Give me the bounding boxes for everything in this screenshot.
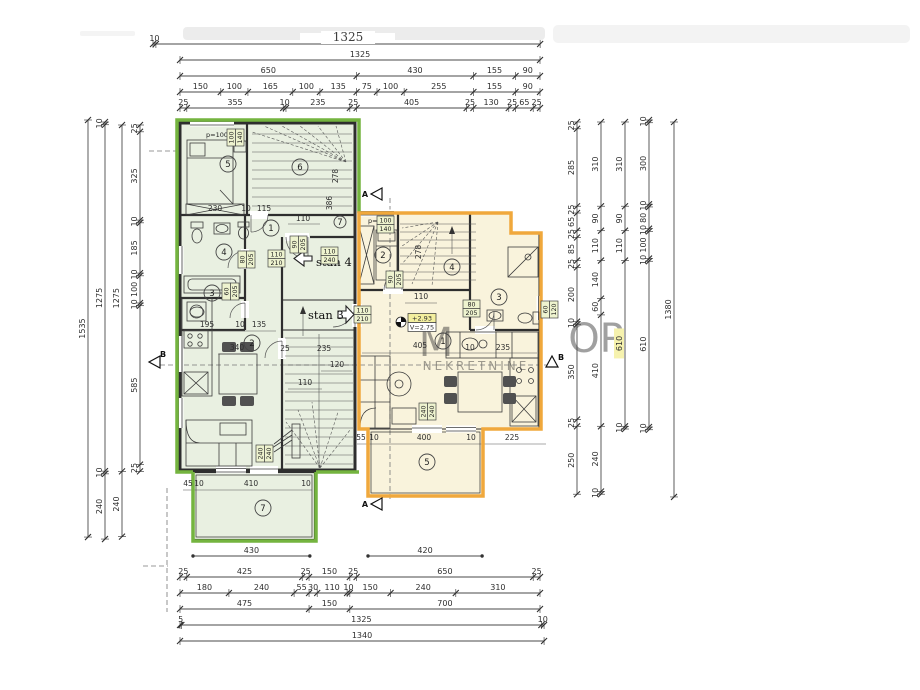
plan-dimension-label: 10	[301, 479, 311, 488]
svg-text:3: 3	[209, 289, 214, 299]
dim-label: 150	[193, 82, 208, 91]
dim-label: 90	[615, 213, 624, 223]
section-marker-a: A	[362, 188, 382, 200]
dim-label: 30	[308, 583, 318, 592]
plan-dimension-label: 25	[280, 344, 290, 353]
dim-chain-dims.left.1: 10127510240	[95, 118, 109, 542]
dim-label: 10	[95, 467, 104, 477]
dim-label: 55	[296, 583, 306, 592]
svg-text:240: 240	[420, 405, 427, 417]
stair-dimension-label: 278	[414, 245, 423, 260]
dim-label: 1535	[78, 318, 87, 338]
svg-text:205: 205	[396, 273, 403, 285]
dim-chain-dims.top.3: 1501001651001357510025515590	[177, 82, 543, 96]
dim-label: 110	[615, 238, 624, 253]
floor-plan-canvas: M OP NEKRETNINE	[0, 0, 920, 690]
dim-label: 75	[362, 82, 372, 91]
dim-label: 325	[130, 168, 139, 183]
plan-dimension-label: 10	[465, 343, 475, 352]
dim-label: 150	[322, 599, 337, 608]
svg-text:B: B	[160, 350, 166, 359]
dim-label: 10	[95, 118, 104, 128]
dim-label: 10	[149, 34, 159, 43]
dim-chain-dims.left.2: 1275240	[112, 122, 126, 540]
dim-label: 25	[348, 567, 358, 576]
dim-label: 90	[591, 213, 600, 223]
dim-label: 165	[263, 82, 278, 91]
section-marker-a: A	[362, 498, 382, 510]
dim-label: 10	[639, 225, 648, 235]
dim-label: 25	[130, 123, 139, 133]
svg-text:140: 140	[379, 226, 391, 233]
green-unit-fill	[180, 123, 355, 470]
dim-label: 1325	[333, 30, 364, 44]
smudge	[80, 31, 135, 36]
svg-text:5: 5	[225, 160, 230, 170]
dim-chain-dims.bottom.1: 180240553011010150240310	[177, 583, 543, 597]
svg-text:210: 210	[270, 260, 282, 267]
svg-text:110: 110	[356, 307, 368, 314]
dim-chain-dims.bottom.0: 25425251502565025	[177, 567, 543, 581]
plan-dimension-label: 115	[257, 204, 272, 213]
dim-label: 10	[639, 200, 648, 210]
svg-text:110: 110	[270, 251, 282, 258]
dim-label: 650	[261, 66, 276, 75]
dim-label: 355	[227, 98, 242, 107]
dim-label: 430	[244, 546, 259, 555]
dim-chain-dims.right.3: 103001080101001061010	[639, 116, 653, 433]
dim-label: 610	[639, 337, 648, 352]
dim-chain-dims.bottom.4: 1340	[177, 631, 547, 645]
plan-dimension-label: 120	[330, 360, 345, 369]
plan-dimension-label: 340	[230, 343, 245, 352]
dim-chain-dims.top.2: 65043015590	[177, 66, 543, 80]
dim-label: 410	[591, 363, 600, 378]
dim-chain-dims.left.0: 1535	[78, 117, 92, 540]
svg-text:240: 240	[257, 447, 264, 459]
dim-label: 1380	[664, 299, 673, 319]
dim-label: 185	[130, 240, 139, 255]
svg-text:7: 7	[337, 218, 342, 228]
dim-label: 300	[639, 156, 648, 171]
plan-dimension-label: 10	[241, 204, 251, 213]
plan-dimension-label: 55	[356, 433, 366, 442]
svg-text:90: 90	[387, 275, 394, 283]
dim-chain-dims.right.4: 1380	[664, 119, 678, 500]
dim-label: 475	[237, 599, 252, 608]
dim-chain-dims.right.0: 2528525652585252001035025250	[567, 119, 581, 497]
dim-label: 25	[348, 98, 358, 107]
dim-label: 25	[567, 259, 576, 269]
window	[216, 467, 246, 474]
dim-label: 10	[567, 318, 576, 328]
dim-label: 430	[407, 66, 422, 75]
dim-label: 650	[437, 567, 452, 576]
plan-dimension-label: 135	[252, 320, 267, 329]
svg-text:205: 205	[248, 253, 255, 265]
dim-chain-dims.bottom.3: 5132510	[177, 615, 548, 629]
dim-label: 10	[639, 116, 648, 126]
dim-label: 25	[130, 463, 139, 473]
dim-label: 1275	[112, 288, 121, 308]
svg-text:B: B	[558, 353, 564, 362]
dim-label: 130	[483, 98, 498, 107]
stan3-label: stan 3	[308, 308, 344, 322]
dim-label: 10	[639, 423, 648, 433]
svg-text:240: 240	[429, 405, 436, 417]
dim-label: 85	[567, 244, 576, 254]
dim-label: 1325	[350, 50, 370, 59]
dim-label: 25	[532, 98, 542, 107]
plan-dimension-label: 110	[414, 292, 429, 301]
dim-chain-dims.bottom_upper.0: 430	[191, 546, 311, 558]
plan-dimension-label: 10	[194, 479, 204, 488]
door-size-label: 240240	[419, 403, 436, 420]
svg-text:A: A	[362, 500, 369, 509]
section-marker-b: B	[546, 353, 564, 367]
plan-dimension-label: 235	[317, 344, 332, 353]
svg-text:210: 210	[356, 316, 368, 323]
svg-text:A: A	[362, 190, 369, 199]
dim-label: 10	[538, 615, 548, 624]
dim-label: 10	[591, 488, 600, 498]
dim-label: 90	[523, 66, 533, 75]
svg-text:205: 205	[232, 285, 239, 297]
svg-text:7: 7	[260, 504, 265, 514]
dim-label: 240	[254, 583, 269, 592]
plan-dimension-label: 195	[200, 320, 215, 329]
dim-label: 25	[507, 98, 517, 107]
dim-label: 10	[343, 583, 353, 592]
dim-label: 65	[567, 217, 576, 227]
plan-dimension-label: 110	[296, 214, 311, 223]
dim-label: 585	[130, 378, 139, 393]
svg-text:60: 60	[223, 287, 230, 295]
door-size-label: 60120	[541, 301, 558, 318]
dim-label: 25	[567, 205, 576, 215]
dim-label: 65	[519, 98, 529, 107]
window	[446, 426, 476, 433]
svg-text:60: 60	[542, 305, 549, 313]
svg-text:205: 205	[465, 310, 477, 317]
door-size-label: 80205	[238, 251, 255, 268]
svg-text:6: 6	[297, 163, 302, 173]
svg-text:3: 3	[496, 293, 501, 303]
level-height: +2.93	[412, 315, 432, 323]
dim-label: 10	[615, 423, 624, 433]
dim-label: 1325	[351, 615, 371, 624]
scan-smudges	[80, 25, 910, 48]
svg-text:100: 100	[228, 131, 235, 143]
dim-label: 25	[465, 98, 475, 107]
dim-label: 1275	[95, 288, 104, 308]
dim-label: 5	[178, 615, 183, 624]
dim-label: 10	[280, 98, 290, 107]
dim-chain-dims.right.2: 3109011061010	[614, 119, 629, 433]
dim-label: 240	[112, 496, 121, 511]
smudge	[553, 25, 910, 43]
dim-label: 25	[567, 120, 576, 130]
plan-dimension-label: 10	[369, 433, 379, 442]
door-size-label: 110210	[354, 306, 371, 323]
dim-label: 100	[130, 282, 139, 297]
door-size-label: 90205	[386, 271, 403, 288]
dim-label: 25	[178, 98, 188, 107]
dim-label: 100	[383, 82, 398, 91]
dim-label: 700	[437, 599, 452, 608]
dim-chain-dims.top.1: 1325	[177, 50, 543, 64]
svg-text:205: 205	[300, 238, 307, 250]
plan-dimension-label: 10	[466, 433, 476, 442]
dim-label: 135	[331, 82, 346, 91]
svg-text:80: 80	[467, 301, 475, 308]
stair-dimension-label: 278	[331, 169, 340, 184]
dim-label: 10	[130, 299, 139, 309]
plan-dimension-label: 410	[244, 479, 259, 488]
dim-label: 240	[591, 451, 600, 466]
parapet-note: p=100	[206, 131, 228, 139]
dim-chain-dims.bottom_upper.1: 420	[366, 546, 484, 558]
dim-label: 1340	[352, 631, 372, 640]
svg-text:100: 100	[379, 217, 391, 224]
dim-label: 180	[197, 583, 212, 592]
plan-dimension-label: 45	[183, 479, 193, 488]
dim-label: 350	[567, 364, 576, 379]
dim-chain-dims.right.1: 310901101406041024010	[591, 119, 605, 498]
svg-text:5: 5	[424, 458, 429, 468]
door-size-label: 110240	[321, 247, 338, 264]
door-size-label: 80205	[463, 300, 480, 317]
svg-text:240: 240	[266, 447, 273, 459]
level-clearance: V=2.75	[410, 324, 434, 332]
svg-text:1: 1	[440, 337, 445, 347]
dim-label: 60	[591, 302, 600, 312]
plan-dimension-label: 400	[417, 433, 432, 442]
dim-label: 100	[639, 237, 648, 252]
dim-label: 10	[130, 216, 139, 226]
dim-label: 10	[639, 255, 648, 265]
dim-label: 240	[95, 499, 104, 514]
dim-label: 25	[567, 418, 576, 428]
svg-text:80: 80	[239, 255, 246, 263]
dim-label: 140	[591, 272, 600, 287]
dim-label: 200	[567, 287, 576, 302]
dim-label: 110	[325, 583, 340, 592]
watermark-word: NEKRETNINE	[423, 359, 530, 373]
dim-label: 25	[532, 567, 542, 576]
dim-label: 310	[591, 156, 600, 171]
door-size-label: 240240	[256, 445, 273, 462]
dim-label: 10	[130, 269, 139, 279]
dim-label: 110	[591, 238, 600, 253]
dim-label: 235	[310, 98, 325, 107]
svg-text:4: 4	[449, 263, 454, 273]
plan-dimension-label: 230	[208, 204, 223, 213]
svg-text:110: 110	[323, 248, 335, 255]
svg-text:120: 120	[551, 303, 558, 315]
dim-label: 150	[363, 583, 378, 592]
dim-label: 150	[322, 567, 337, 576]
svg-text:90: 90	[291, 240, 298, 248]
dim-label: 155	[487, 66, 502, 75]
dim-chain-dims.left.3: 2532510185101001058525	[130, 122, 144, 474]
door-size-label: 90205	[290, 236, 307, 253]
svg-text:140: 140	[237, 131, 244, 143]
dim-label: 405	[404, 98, 419, 107]
door-size-label: 100140	[227, 129, 244, 146]
dim-label: 155	[487, 82, 502, 91]
dim-label: 285	[567, 160, 576, 175]
dim-label: 100	[299, 82, 314, 91]
plan-dimension-label: 225	[505, 433, 520, 442]
door-size-label: 110210	[268, 250, 285, 267]
svg-text:2: 2	[380, 251, 385, 261]
door-size-label: 100140	[377, 216, 394, 233]
dim-label: 100	[227, 82, 242, 91]
door-size-label: 60205	[222, 283, 239, 300]
dim-label: 610	[615, 336, 624, 351]
dim-label: 310	[490, 583, 505, 592]
plan-dimension-label: 110	[298, 378, 313, 387]
stair-dimension-label: 386	[325, 196, 334, 211]
plan-dimension-label: 235	[496, 343, 511, 352]
dim-label: 425	[237, 567, 252, 576]
dim-label: 90	[523, 82, 533, 91]
dim-label: 240	[416, 583, 431, 592]
dim-label: 255	[431, 82, 446, 91]
dim-label: 25	[301, 567, 311, 576]
dim-chain-dims.bottom.2: 475150700	[177, 599, 543, 613]
svg-text:1: 1	[268, 224, 273, 234]
dim-chain-dims.top.4: 25355102352540525130256525	[177, 98, 543, 112]
plan-dimension-label: 10	[235, 320, 245, 329]
dim-label: 310	[615, 156, 624, 171]
svg-text:240: 240	[323, 257, 335, 264]
dim-label: 80	[639, 213, 648, 223]
plan-dimension-label: 405	[413, 341, 428, 350]
svg-text:4: 4	[221, 248, 226, 258]
dim-label: 25	[178, 567, 188, 576]
dim-label: 420	[417, 546, 432, 555]
dim-label: 250	[567, 453, 576, 468]
svg-text:2: 2	[249, 339, 254, 349]
dim-label: 25	[567, 229, 576, 239]
